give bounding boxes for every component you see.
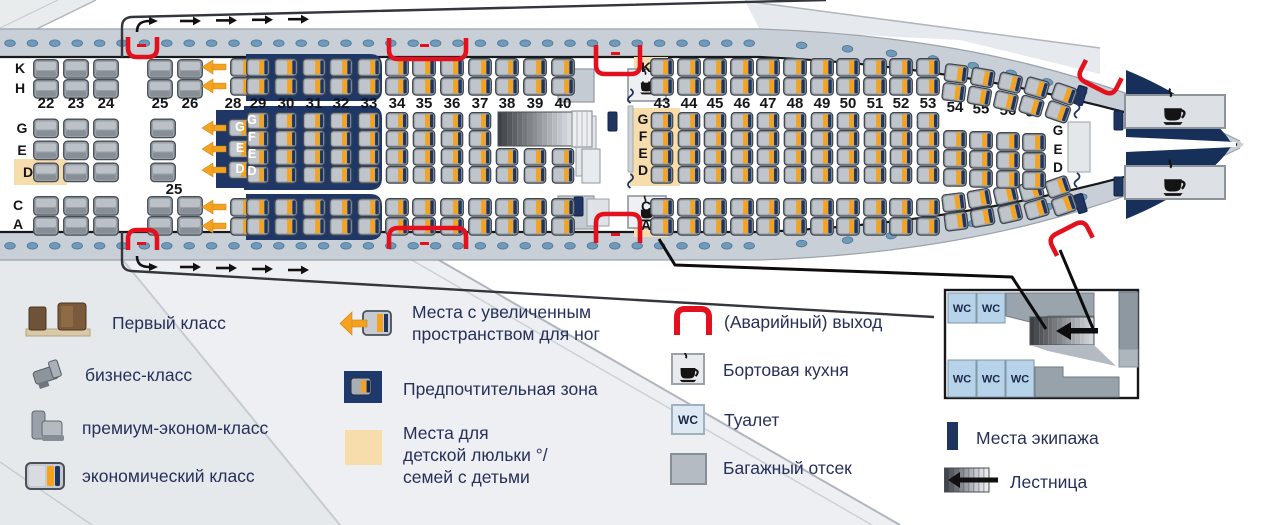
window xyxy=(318,243,329,250)
window xyxy=(453,40,464,47)
seat xyxy=(704,199,727,216)
seat xyxy=(678,59,701,76)
seat xyxy=(890,218,913,235)
seat xyxy=(469,113,490,129)
window xyxy=(565,40,576,47)
seat xyxy=(811,78,834,95)
seat xyxy=(704,131,725,147)
row-number-52: 52 xyxy=(893,95,910,112)
seat xyxy=(890,78,913,95)
seat xyxy=(890,131,911,147)
window xyxy=(722,243,733,250)
row-number-25-mid: 25 xyxy=(166,181,183,198)
seat xyxy=(148,60,173,78)
seat xyxy=(970,170,993,187)
seat xyxy=(704,113,725,129)
seat xyxy=(811,59,834,76)
window xyxy=(610,243,621,250)
window xyxy=(27,243,38,250)
row-number-34: 34 xyxy=(389,95,406,112)
seat xyxy=(552,199,575,216)
seat xyxy=(784,149,805,165)
seat xyxy=(651,59,674,76)
row-number-47: 47 xyxy=(760,95,777,112)
window xyxy=(677,40,688,47)
cabin-letter-H: H xyxy=(641,78,651,94)
seat xyxy=(524,167,545,183)
row-number-40: 40 xyxy=(555,95,572,112)
seat xyxy=(1023,172,1046,189)
cabin-letter-F: F xyxy=(639,128,648,144)
cabin-letter-A: A xyxy=(13,216,23,232)
row-number-22: 22 xyxy=(38,95,55,112)
seat xyxy=(413,59,436,76)
inset-arrow xyxy=(1068,328,1098,334)
seat xyxy=(413,113,434,129)
seat xyxy=(651,149,672,165)
seat xyxy=(148,197,173,215)
seat xyxy=(524,218,547,235)
seat xyxy=(441,167,462,183)
exit-door-mark xyxy=(420,44,429,47)
seat xyxy=(678,113,699,129)
seat xyxy=(524,149,545,165)
seat xyxy=(386,199,409,216)
crew-seat xyxy=(1114,177,1123,196)
seat xyxy=(997,152,1020,169)
seat xyxy=(678,78,701,95)
seat xyxy=(917,113,938,129)
cabin-letter-K: K xyxy=(641,59,651,75)
seat xyxy=(552,218,575,235)
seat xyxy=(151,163,176,181)
row-number-38: 38 xyxy=(499,95,516,112)
cabin-letter-G: G xyxy=(638,111,649,127)
seat xyxy=(441,113,462,129)
seat xyxy=(358,131,379,147)
window xyxy=(587,243,598,250)
direction-arrow xyxy=(265,15,273,24)
seat xyxy=(247,78,270,95)
seat xyxy=(178,197,203,215)
seat xyxy=(413,199,436,216)
seat xyxy=(94,119,119,137)
seat xyxy=(413,149,434,165)
seat xyxy=(917,199,940,216)
window xyxy=(94,40,105,47)
seat xyxy=(864,167,885,183)
window xyxy=(5,243,16,250)
seat xyxy=(784,59,807,76)
window xyxy=(94,243,105,250)
seat xyxy=(469,167,490,183)
window xyxy=(184,40,195,47)
seat xyxy=(275,78,298,95)
seat xyxy=(704,59,727,76)
row-number-28: 28 xyxy=(225,95,242,112)
seat xyxy=(757,113,778,129)
seat xyxy=(303,113,324,129)
seat xyxy=(64,163,89,181)
row-number-33: 33 xyxy=(361,95,378,112)
aft-closet xyxy=(1068,122,1090,172)
seat xyxy=(34,163,59,181)
seat xyxy=(997,133,1020,150)
seat xyxy=(757,218,780,235)
crew-seat xyxy=(608,112,617,131)
seat xyxy=(811,167,832,183)
closet xyxy=(582,149,600,183)
window xyxy=(475,243,486,250)
seat xyxy=(970,67,995,88)
seat xyxy=(678,218,701,235)
seat xyxy=(837,149,858,165)
cabin-letter-G: G xyxy=(247,113,257,127)
seat xyxy=(34,119,59,137)
seat xyxy=(997,171,1020,188)
cabin-letter-C: C xyxy=(13,197,23,213)
cabin-letter-G: G xyxy=(1053,123,1064,138)
seat xyxy=(496,199,519,216)
window xyxy=(206,243,217,250)
seat xyxy=(386,59,409,76)
seat xyxy=(64,60,89,78)
window xyxy=(542,243,553,250)
seat xyxy=(784,113,805,129)
seat xyxy=(552,167,573,183)
exit-door-mark xyxy=(611,52,620,55)
seat xyxy=(34,197,59,215)
seat xyxy=(811,113,832,129)
seat xyxy=(731,218,754,235)
row-number-24: 24 xyxy=(98,95,115,112)
seat xyxy=(151,119,176,137)
seat xyxy=(757,131,778,147)
seat xyxy=(970,207,995,228)
seat xyxy=(678,167,699,183)
seat xyxy=(469,59,492,76)
row-number-45: 45 xyxy=(707,95,724,112)
seat xyxy=(704,218,727,235)
seat xyxy=(524,78,547,95)
row-number-25: 25 xyxy=(152,95,169,112)
window xyxy=(363,40,374,47)
row-number-49: 49 xyxy=(814,95,831,112)
window xyxy=(699,243,710,250)
seat xyxy=(864,149,885,165)
row-number-37: 37 xyxy=(472,95,489,112)
seat xyxy=(757,78,780,95)
seat xyxy=(552,78,575,95)
crew-seat xyxy=(1114,111,1123,130)
cabin-letter-D: D xyxy=(235,162,244,176)
seat xyxy=(917,131,938,147)
seat xyxy=(496,218,519,235)
seat xyxy=(651,167,672,183)
window xyxy=(72,243,83,250)
row-number-30: 30 xyxy=(278,95,295,112)
stairs-landing xyxy=(572,111,592,147)
seat xyxy=(496,167,517,183)
seat xyxy=(275,131,296,147)
seat xyxy=(651,131,672,147)
inset-wc-label: WC xyxy=(953,374,971,386)
seat xyxy=(386,149,407,165)
seat xyxy=(64,217,89,235)
inset-structure xyxy=(1119,292,1138,349)
seat xyxy=(1023,134,1046,151)
seat xyxy=(386,131,407,147)
window xyxy=(5,40,16,47)
window xyxy=(408,243,419,250)
cabin-letter-C: C xyxy=(641,198,651,214)
seat xyxy=(837,59,860,76)
seat xyxy=(496,59,519,76)
seat xyxy=(967,188,992,209)
seat xyxy=(64,197,89,215)
seat xyxy=(731,59,754,76)
seat xyxy=(330,167,351,183)
window xyxy=(498,40,509,47)
seat xyxy=(731,78,754,95)
seat xyxy=(469,149,490,165)
window xyxy=(50,243,61,250)
seat xyxy=(864,113,885,129)
seat xyxy=(864,131,885,147)
window xyxy=(318,40,329,47)
seat xyxy=(864,199,887,216)
row-number-29: 29 xyxy=(250,95,267,112)
seat xyxy=(386,113,407,129)
seat xyxy=(303,149,324,165)
seat xyxy=(944,131,967,148)
seat xyxy=(784,78,807,95)
window xyxy=(27,40,38,47)
window xyxy=(408,40,419,47)
seat xyxy=(678,199,701,216)
window xyxy=(363,243,374,250)
seat xyxy=(151,141,176,159)
seat xyxy=(837,167,858,183)
window xyxy=(274,243,285,250)
row-number-23: 23 xyxy=(68,95,85,112)
cabin-letter-F: F xyxy=(248,130,256,144)
seat xyxy=(757,167,778,183)
seat xyxy=(917,167,938,183)
cabin-letter-G: G xyxy=(17,120,28,136)
seat xyxy=(944,63,969,83)
seatmap-infographic: 222324252625KHGEDCA282930313233343536373… xyxy=(0,0,1264,525)
seat xyxy=(275,199,298,216)
window xyxy=(677,243,688,250)
emergency-exit-marker xyxy=(1048,220,1093,256)
seat xyxy=(704,78,727,95)
seat xyxy=(731,167,752,183)
seat xyxy=(303,218,326,235)
cabin-letter-D: D xyxy=(1053,160,1063,175)
row-number-31: 31 xyxy=(306,95,323,112)
seat xyxy=(651,113,672,129)
window xyxy=(542,40,553,47)
seat xyxy=(358,199,381,216)
seat xyxy=(942,82,967,102)
seat xyxy=(651,218,674,235)
cabin-letter-E: E xyxy=(638,145,647,161)
window xyxy=(430,40,441,47)
seat xyxy=(1023,153,1046,170)
window xyxy=(162,40,173,47)
seat xyxy=(970,132,993,149)
seat xyxy=(944,150,967,167)
crew-seat xyxy=(574,197,583,216)
row-number-39: 39 xyxy=(527,95,544,112)
window xyxy=(296,243,307,250)
seat xyxy=(275,113,296,129)
window xyxy=(206,40,217,47)
seat xyxy=(970,151,993,168)
seat xyxy=(731,113,752,129)
window xyxy=(744,243,755,250)
seat xyxy=(552,59,575,76)
window xyxy=(274,40,285,47)
seat xyxy=(757,199,780,216)
seat xyxy=(651,78,674,95)
seat xyxy=(784,131,805,147)
cabin-letter-K: K xyxy=(15,60,25,76)
window xyxy=(498,243,509,250)
seat xyxy=(330,149,351,165)
row-number-43: 43 xyxy=(654,95,671,112)
seat xyxy=(678,131,699,147)
seat xyxy=(303,167,324,183)
seat xyxy=(496,149,517,165)
seat xyxy=(942,192,967,212)
seat xyxy=(413,78,436,95)
seat xyxy=(413,167,434,183)
seat xyxy=(731,149,752,165)
seat xyxy=(303,199,326,216)
seat xyxy=(864,218,887,235)
exit-door-mark xyxy=(137,242,146,245)
seat xyxy=(469,131,490,147)
seat xyxy=(34,217,59,235)
seat xyxy=(64,141,89,159)
window xyxy=(475,40,486,47)
row-number-26: 26 xyxy=(182,95,199,112)
seat xyxy=(330,131,351,147)
seat xyxy=(757,59,780,76)
seat xyxy=(811,218,834,235)
row-number-48: 48 xyxy=(787,95,804,112)
seat xyxy=(890,167,911,183)
seat xyxy=(731,131,752,147)
seat xyxy=(441,78,464,95)
seat xyxy=(837,131,858,147)
seat xyxy=(917,78,940,95)
seat xyxy=(811,131,832,147)
seat xyxy=(178,217,203,235)
seat xyxy=(837,78,860,95)
window xyxy=(72,40,83,47)
seat xyxy=(651,199,674,216)
cabin-letter-E: E xyxy=(248,147,256,161)
cabin-letter-H: H xyxy=(15,80,25,96)
cabin-letter-G: G xyxy=(235,120,245,134)
window xyxy=(341,243,352,250)
window xyxy=(296,40,307,47)
seat xyxy=(890,149,911,165)
seat xyxy=(358,167,379,183)
window xyxy=(520,243,531,250)
seat xyxy=(247,218,270,235)
row-number-50: 50 xyxy=(840,95,857,112)
seat xyxy=(247,199,270,216)
window xyxy=(453,243,464,250)
seat xyxy=(303,131,324,147)
cabin-letter-D: D xyxy=(23,164,33,180)
direction-arrow xyxy=(229,16,237,25)
window xyxy=(610,40,621,47)
seat xyxy=(837,113,858,129)
seat xyxy=(944,211,969,231)
window xyxy=(699,40,710,47)
seat xyxy=(784,199,807,216)
window xyxy=(184,243,195,250)
aircraft-seatmap-svg: 222324252625KHGEDCA282930313233343536373… xyxy=(0,0,1264,525)
seat xyxy=(837,199,860,216)
window xyxy=(654,40,665,47)
window xyxy=(520,40,531,47)
window xyxy=(565,243,576,250)
window xyxy=(229,243,240,250)
seat xyxy=(34,60,59,78)
seat xyxy=(358,78,381,95)
seat xyxy=(413,131,434,147)
seat xyxy=(178,60,203,78)
seat xyxy=(94,163,119,181)
seat xyxy=(303,59,326,76)
window xyxy=(796,240,807,247)
seat xyxy=(917,59,940,76)
cabin-letter-D: D xyxy=(247,164,256,178)
seat xyxy=(330,199,353,216)
seat xyxy=(704,167,725,183)
row-number-36: 36 xyxy=(444,95,461,112)
inset-wc-label: WC xyxy=(982,374,1000,386)
seat xyxy=(864,78,887,95)
cabin-letter-E: E xyxy=(236,141,244,155)
seat xyxy=(386,167,407,183)
window xyxy=(632,243,643,250)
inset-wc-label: WC xyxy=(953,303,971,315)
seat xyxy=(275,149,296,165)
seat xyxy=(386,78,409,95)
exit-door-mark xyxy=(420,242,429,245)
exit-door-mark xyxy=(137,44,146,47)
cabin-letter-A: A xyxy=(641,217,651,233)
seat xyxy=(944,169,967,186)
seat xyxy=(358,218,381,235)
direction-arrow xyxy=(301,15,309,24)
window xyxy=(722,40,733,47)
seat xyxy=(330,218,353,235)
window xyxy=(341,40,352,47)
seat xyxy=(275,167,296,183)
row-number-35: 35 xyxy=(416,95,433,112)
seat xyxy=(330,59,353,76)
seat xyxy=(731,199,754,216)
inset-wc-label: WC xyxy=(982,303,1000,315)
